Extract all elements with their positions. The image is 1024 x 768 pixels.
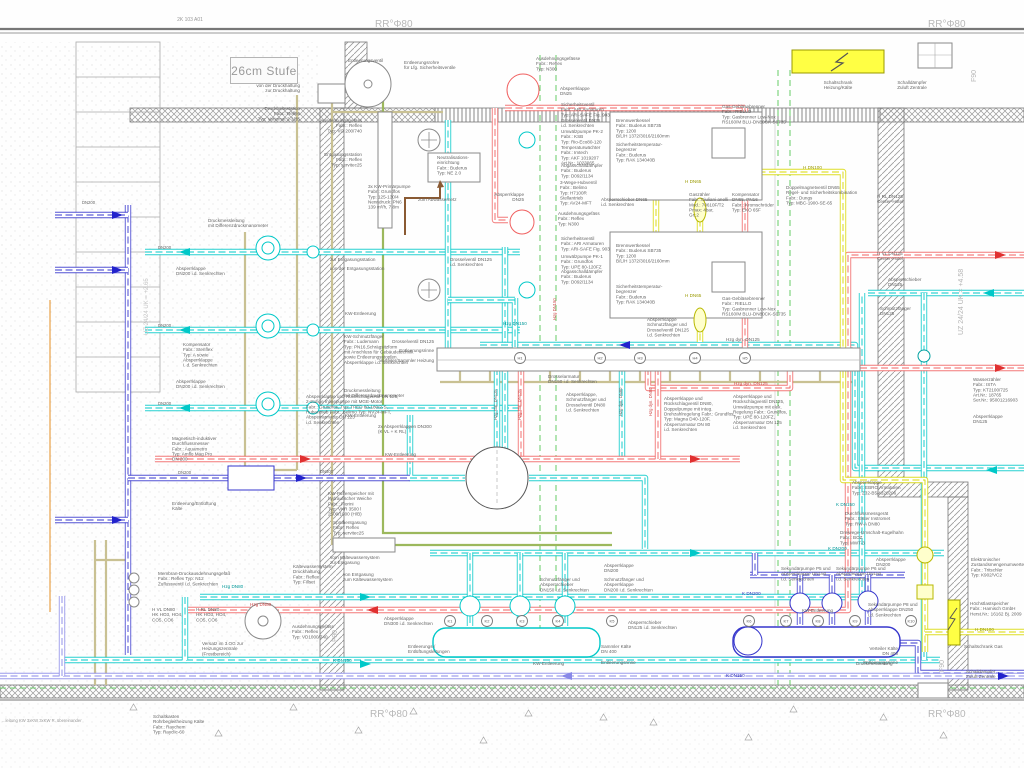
heating_manifold-port-label-H1: H1	[517, 356, 523, 361]
annotation-label-30: H DN65	[685, 179, 702, 184]
annotation-label-58: DrosselarmaturDN150 i.d. Senkrechten	[548, 374, 597, 384]
annotation-label-8: Umwälzpumpe PK-2Fabr.: KSBTyp: Rio-Eco80…	[561, 129, 603, 144]
annotation-label-129: SchalldämpferZuluft Zentrale	[966, 669, 996, 679]
annotation-label-80: UZ 24/24 UK = +2.65	[144, 278, 150, 335]
pump-pk2-symbol	[519, 132, 535, 148]
servitec-degasser	[333, 538, 395, 552]
annotation-label-57: Absperrklappe,Schmutzfänger undDrosselve…	[566, 392, 606, 412]
annotation-label-52: Hzg dyn. DN125	[726, 337, 760, 342]
annotation-label-103: DN300	[320, 469, 334, 474]
annotation-label-44: F90	[971, 70, 978, 82]
annotation-label-77: DN200	[158, 323, 172, 328]
small-vessel-1	[129, 573, 139, 583]
annotation-label-5: AbsperrklappeDN25	[560, 86, 590, 96]
annotation-label-48: Drosselventil DN125	[392, 339, 434, 344]
annotation-label-124: Dreiwege-Umschalt-KugelhahnFabr.: BOZTyp…	[840, 530, 904, 545]
annotation-label-38: H VL DN125Center-Hotel	[877, 251, 903, 261]
water-meter-symbol	[918, 350, 930, 362]
annotation-label-23: AbgasschalldämpferFabr.: BuderusTyp: D09…	[561, 269, 603, 284]
chilled_distributor-port-label-K10: K10	[907, 619, 915, 624]
annotation-label-60: Hzg stat. DN125	[517, 389, 522, 420]
annotation-label-79: DN200	[82, 200, 96, 205]
annotation-label-102: SprühentgasungFabr.: ReflexTyp: servitec…	[333, 520, 367, 535]
annotation-label-91: ...leitung KW 3xKW 3xKW R. übereinander	[2, 718, 82, 723]
kw-primary-pump-1	[256, 236, 280, 260]
chilled_collector-port-label-K2: K2	[485, 619, 491, 624]
annotation-label-100: KW-Entleerung	[385, 452, 417, 457]
annotation-label-120: K DN200	[742, 591, 761, 596]
annotation-label-26: Absperrschieber DN65i.d. Senkrechten	[601, 197, 648, 207]
annotation-label-75: KW-Entleerung	[345, 413, 377, 418]
control-cabinet-gas	[948, 600, 960, 645]
annotation-label-70: KW-Entleerung	[345, 311, 377, 316]
secondary-pump-k3	[555, 596, 575, 616]
annotation-label-68: zur Entgasungsstation	[330, 257, 376, 262]
annotation-label-107: Schmutzfänger undAbsperrklappeDN200 i.d.…	[604, 577, 653, 592]
annotation-label-131: RR°Φ80	[928, 19, 966, 30]
annotation-label-98: K DN150	[333, 658, 352, 663]
expansion-vessel-vg200	[378, 112, 392, 228]
annotation-label-86: Hzg DN80	[250, 602, 272, 607]
annotation-label-59: Hzg stat. DN125	[493, 389, 498, 420]
gas-meter-body	[917, 585, 933, 599]
pipe-segment	[495, 108, 508, 220]
annotation-label-54: Absperrklappe undRückschlagventil DN80,D…	[664, 396, 735, 432]
chilled_collector-port-label-K4: K4	[556, 619, 562, 624]
bottom-wall-band	[0, 685, 1024, 698]
annotation-label-43: AbsperrklappeDN125	[973, 414, 1003, 424]
expansion-vessel-n300-2	[510, 210, 534, 234]
annotation-label-53: Hzg dyn. DN125	[734, 381, 768, 386]
annotation-label-7: Drosselventil DN25i.d. Senkrechten	[561, 118, 601, 128]
annotation-label-46: F90	[939, 660, 946, 672]
annotation-label-106: Schmutzfänger undAbsperrschieberDN150 i.…	[540, 577, 589, 592]
annotation-label-108: AbsperrschieberDN125 i.d. Senkrechten	[628, 620, 677, 630]
annotation-label-118: Entleerungsrinne	[863, 660, 898, 665]
annotation-label-45: F90	[332, 630, 339, 642]
annotation-label-134: 2K 103 A01	[177, 17, 203, 23]
annotation-label-93: vom Kältewassersystemzur Entgasung	[330, 555, 380, 565]
annotation-label-56: Absperrklappe und Rückschlagventil DN 12…	[306, 394, 398, 425]
kw-primary-pump-3	[256, 392, 280, 416]
pressure-station-box	[318, 84, 345, 103]
annotation-label-21: SicherheitsventilFabr.: ARI ArmaturenTyp…	[561, 236, 610, 251]
gas-compensator-2	[694, 308, 706, 332]
annotation-label-122: K DN150	[836, 502, 855, 507]
annotation-label-28: Gas-GebläsebrennerFabr.: RIELLOTyp: Gasb…	[722, 296, 786, 316]
annotation-label-119: AbsperrklappeDN200	[876, 557, 906, 567]
annotation-label-121: K DN150	[726, 673, 745, 678]
heating_manifold-port-label-H2: H2	[597, 356, 603, 361]
annotation-label-16: AbsperrklappeDN25	[494, 192, 524, 202]
schematic-canvas: von der Druckhaltungzur DruckhaltungDruc…	[0, 0, 1024, 768]
piping-schematic-drawing: von der Druckhaltungzur DruckhaltungDruc…	[0, 0, 1024, 768]
burner-1-box	[712, 128, 745, 158]
annotation-label-37: H RL DN125Center-Hotel	[877, 194, 903, 204]
annotation-label-82: DN200	[178, 470, 192, 475]
small-vessel-2	[129, 585, 139, 595]
annotation-label-51: AbsperrklappeSchmutzfänger undDrosselven…	[647, 317, 689, 337]
heating-manifold	[437, 348, 860, 371]
annotation-label-35: SchaltschrankHeizung/Kälte	[824, 80, 854, 90]
silencer-box-bottom	[918, 683, 948, 698]
annotation-label-133: RR°Φ80	[928, 709, 966, 720]
annotation-label-126: HöchstlastspeicherFabr.: Hamisch GmbHHer…	[970, 601, 1022, 616]
chilled_distributor-port-label-K6: K6	[747, 619, 753, 624]
small-vessel-3	[129, 597, 139, 607]
annotation-label-130: RR°Φ80	[375, 19, 413, 30]
annotation-label-99: 2x Absperrklappen DN300(K VL + K RL)	[378, 424, 432, 434]
annotation-label-63: Hzg DN150	[552, 298, 557, 320]
annotation-label-69: von der Entgasungsstation	[330, 266, 385, 271]
chilled-collector-cylinder	[433, 628, 600, 657]
neutralisation-drain	[405, 183, 440, 235]
chilled_collector-port-label-K5: K5	[610, 619, 616, 624]
annotation-label-20: Drosselventil DN125i.d. Senkrechten	[450, 257, 492, 267]
pipe-segment	[529, 478, 645, 549]
annotation-label-78: DN200	[158, 401, 172, 406]
annotation-label-85: Hzg DN80	[222, 584, 244, 589]
annotation-label-36: SchalldämpferZuluft Zentrale	[897, 80, 927, 90]
distributor-main-pump	[734, 627, 762, 655]
annotation-label-114: Sekundärpumpe P8 undAbsperrklappe DN250i…	[868, 602, 918, 617]
pipe-segment	[529, 478, 645, 549]
pipe-segment	[529, 478, 645, 549]
burner-2-box	[712, 262, 745, 292]
annotation-label-17: AusdehnungsgefässFabr.: ReflexTyp: N300	[558, 211, 600, 226]
kw-primary-pump-2	[256, 314, 280, 338]
step-height-label: 26cm Stufe	[230, 57, 298, 84]
chilled_collector-port-label-K3: K3	[520, 619, 526, 624]
annotation-label-110: Entleerungsrinne	[601, 660, 636, 665]
annotation-label-41: UZ 24/24 UK = +4.58	[958, 269, 965, 335]
right-wall-lower	[948, 497, 968, 690]
annotation-label-76: DN200	[158, 245, 172, 250]
annotation-label-19: zum Abwassernetz	[418, 197, 457, 202]
expansion-vessel-n300-1	[507, 74, 539, 106]
step-height-text: 26cm Stufe	[231, 64, 297, 78]
control-cabinet-heating-cooling	[792, 50, 884, 73]
heating_manifold-port-label-H5: H5	[742, 356, 748, 361]
annotation-label-115: KW-Entleerung	[802, 608, 834, 613]
annotation-label-61: Hzg dyn. DN80	[618, 387, 623, 416]
annotation-label-29: H DN100	[803, 165, 822, 170]
annotation-label-113: Sekundärpumpe P6 undAbsperrklappe DN150i…	[836, 566, 886, 581]
secondary-pump-k1	[460, 596, 480, 616]
annotation-label-4: AusdehnungsgefässeFabr.: ReflexTyp: N300	[536, 56, 581, 71]
chilled_distributor-port-label-K8: K8	[816, 619, 822, 624]
annotation-label-104: K DN200	[828, 546, 847, 551]
annotation-label-42: WasserzählerFabr.: ISTATyp: KT2100/725Ar…	[973, 377, 1018, 403]
annotation-label-101: KW-Pufferspeicher mithydraulischer Weich…	[328, 491, 375, 517]
annotation-label-96: AbsperrklappeDN300 i.d. Senkrechten	[384, 616, 433, 626]
secondary-pump-k2	[510, 596, 530, 616]
annotation-label-105: AbsperrklappeDN200	[604, 563, 634, 573]
chilled_distributor-port-label-K7: K7	[784, 619, 790, 624]
annotation-label-55: Absperrklappe undRückschlagventil DN125,…	[733, 394, 787, 430]
annotation-label-132: RR°Φ80	[370, 709, 408, 720]
chilled_collector-port-label-K1: K1	[448, 619, 454, 624]
annotation-label-14: AbgasschalldämpferFabr.: BuderusTyp: D09…	[561, 163, 603, 178]
pump-pk1-symbol	[519, 282, 535, 298]
chilled_distributor-port-label-K9: K9	[853, 619, 859, 624]
gas-flow-device	[917, 547, 933, 563]
annotation-label-2: Entleerungsventil	[348, 58, 383, 63]
annotation-label-15: 3-Wege-HubventilFabr.: BelimoTyp: H7100R…	[560, 180, 597, 206]
annotation-label-94: von Entgasungzum Kältewassersystem	[343, 572, 393, 582]
annotation-label-128: Schaltschrank Gas	[964, 644, 1003, 649]
annotation-label-125: ElektronischerZustandsmengenumwerterFabr…	[971, 557, 1024, 577]
annotation-label-3: Entleerungsrohrefür Lfg. Sicherheitsvent…	[404, 60, 456, 70]
annotation-label-31: H DN65	[685, 293, 702, 298]
annotation-label-47: Hzg DN150	[503, 321, 527, 326]
annotation-label-6: SicherheitsventilFabr.: ARI ArmaturenTyp…	[561, 102, 610, 117]
annotation-label-22: Umwälzpumpe PK-1Fabr.: GrundfosTyp: UPE …	[561, 254, 603, 269]
annotation-label-127: H DN100	[975, 627, 994, 632]
annotation-label-34: Doppelmagnetventil DN65Regel- und Sicher…	[786, 185, 858, 205]
annotation-label-112: Sekundärpumpe P5 undAbsperrklappe DN150i…	[781, 566, 831, 581]
annotation-label-111: KW-Entleerung	[533, 661, 565, 666]
heating_manifold-port-label-H4: H4	[692, 356, 698, 361]
annotation-label-109: Sammler KälteDN 400	[601, 644, 632, 654]
annotation-label-62: Hzg dyn. DN80	[648, 387, 653, 416]
annotation-label-123: DurchflussmessgerätFabr.: Elster Instrom…	[845, 511, 891, 526]
flowmeter-dn200	[228, 466, 274, 490]
annotation-label-39: AbsperrschieberDN125	[888, 277, 922, 287]
heating_manifold-port-label-H3: H3	[637, 356, 643, 361]
annotation-label-33: KompensatorDN65, PN16Fabr.: Kromschröder…	[732, 192, 774, 212]
annotation-label-74: Druckmessleitungmit Differenzdruckmanome…	[344, 388, 405, 398]
